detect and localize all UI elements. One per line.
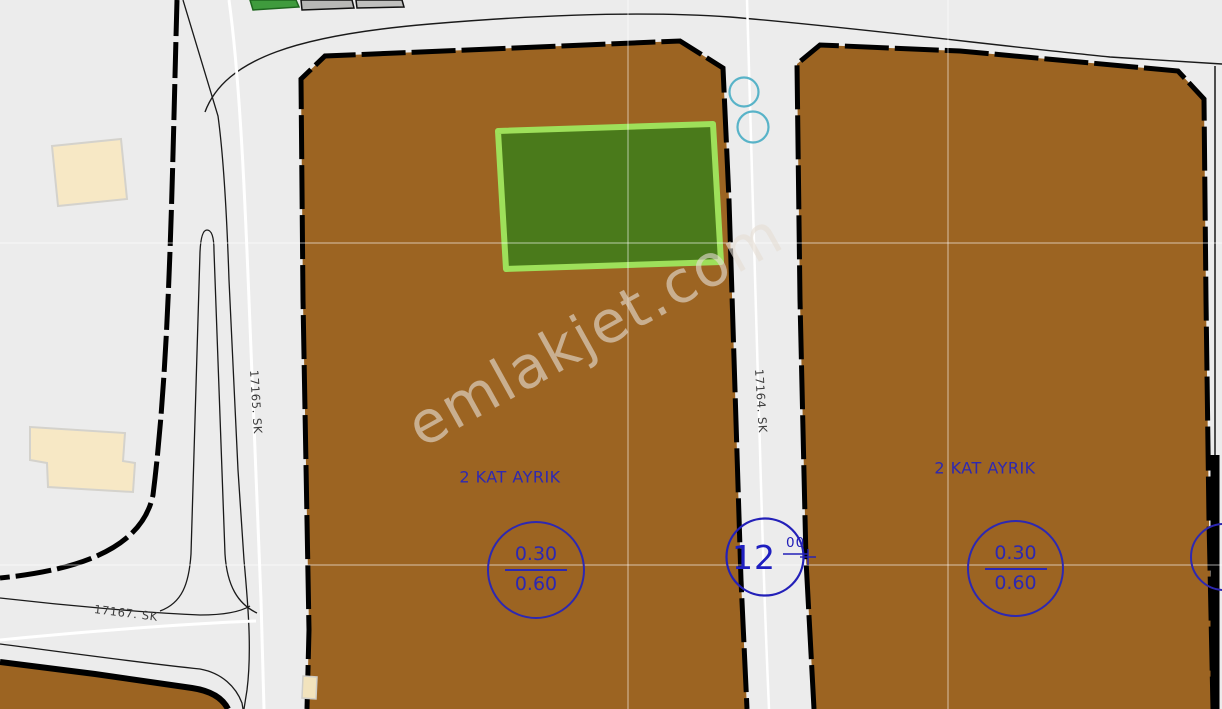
ratio-left-denominator: 0.60 bbox=[515, 574, 557, 596]
building-beige-lower bbox=[30, 427, 135, 492]
ratio-circle-left: 0.30 0.60 bbox=[487, 521, 585, 619]
ratio-circle-right: 0.30 0.60 bbox=[967, 520, 1064, 617]
boundary-band-far-right bbox=[1211, 455, 1220, 709]
centerline-17164 bbox=[747, 0, 769, 709]
zoning-label-right: 2 KAT AYRIK bbox=[934, 459, 1035, 478]
building-top-green bbox=[250, 0, 299, 10]
road-loop-hairpin bbox=[160, 230, 257, 613]
centerline-17167 bbox=[0, 621, 256, 640]
highlighted-parcel[interactable] bbox=[498, 124, 721, 269]
block-number: 12 bbox=[732, 538, 776, 577]
ratio-left-numerator: 0.30 bbox=[515, 544, 557, 566]
building-beige-upper bbox=[52, 139, 127, 206]
building-beige-small bbox=[302, 676, 317, 699]
centerline-17165 bbox=[229, 0, 264, 709]
ratio-right-numerator: 0.30 bbox=[994, 543, 1036, 565]
building-top-gray-1 bbox=[301, 0, 354, 10]
survey-circle-upper bbox=[730, 78, 759, 107]
building-top-gray-2 bbox=[356, 0, 404, 8]
boundary-line-left bbox=[0, 0, 177, 578]
ratio-right-denominator: 0.60 bbox=[994, 573, 1036, 595]
cadastral-zoning-map[interactable]: emlakjet.com 17165. SK 17164. SK 17167. … bbox=[0, 0, 1222, 709]
ratio-right-divider bbox=[985, 568, 1047, 570]
survey-circle-lower bbox=[738, 112, 769, 143]
small-fraction-numerator: 00 bbox=[786, 535, 805, 551]
ratio-left-divider bbox=[505, 569, 567, 571]
zoning-label-left: 2 KAT AYRIK bbox=[459, 468, 560, 487]
